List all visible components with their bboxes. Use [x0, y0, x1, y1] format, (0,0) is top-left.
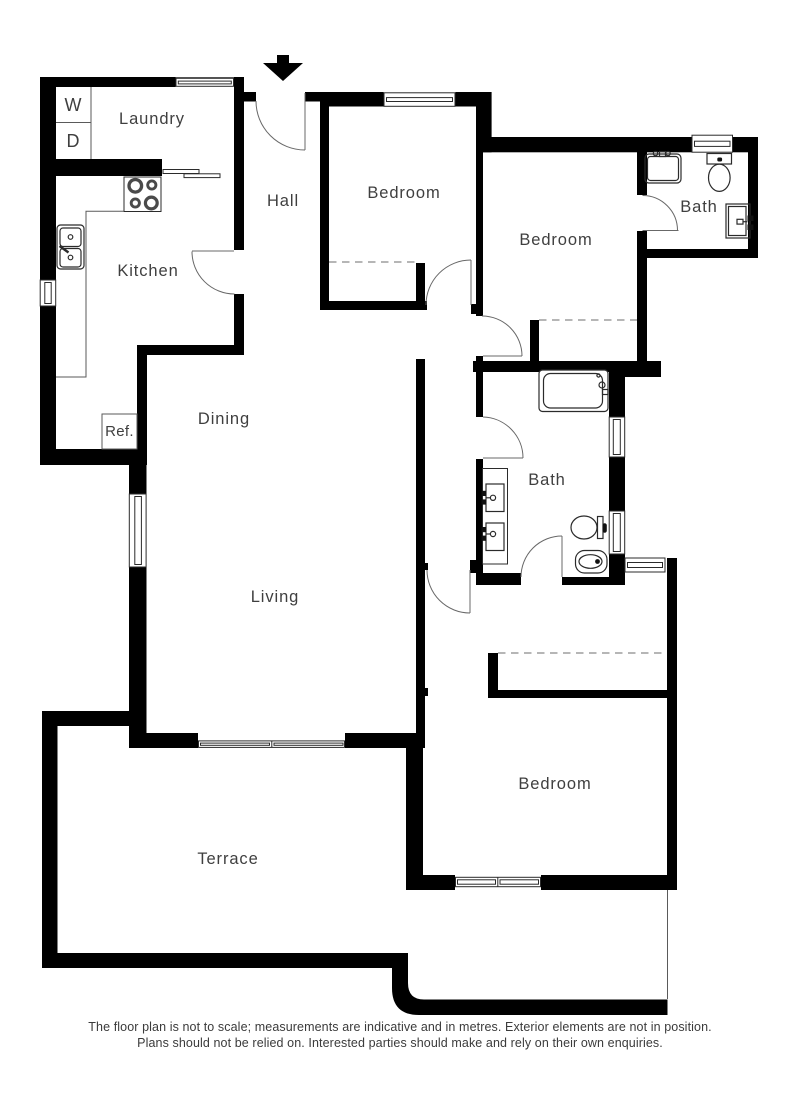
svg-text:Hall: Hall [267, 192, 299, 210]
svg-text:Terrace: Terrace [197, 850, 258, 868]
svg-text:Bath: Bath [528, 471, 566, 489]
svg-text:Dining: Dining [198, 410, 250, 428]
svg-text:Living: Living [251, 588, 300, 606]
svg-text:Bedroom: Bedroom [367, 184, 440, 202]
svg-text:D: D [67, 131, 80, 151]
svg-text:Bedroom: Bedroom [518, 775, 591, 793]
svg-text:The floor plan is not to scale: The floor plan is not to scale; measurem… [88, 1020, 711, 1034]
svg-text:Kitchen: Kitchen [117, 262, 178, 280]
svg-text:Bedroom: Bedroom [519, 231, 592, 249]
svg-text:Ref.: Ref. [105, 423, 134, 440]
svg-text:Laundry: Laundry [119, 110, 185, 128]
svg-text:W: W [65, 95, 82, 115]
svg-text:Plans should not be relied on.: Plans should not be relied on. Intereste… [137, 1036, 663, 1050]
svg-text:Bath: Bath [680, 198, 718, 216]
